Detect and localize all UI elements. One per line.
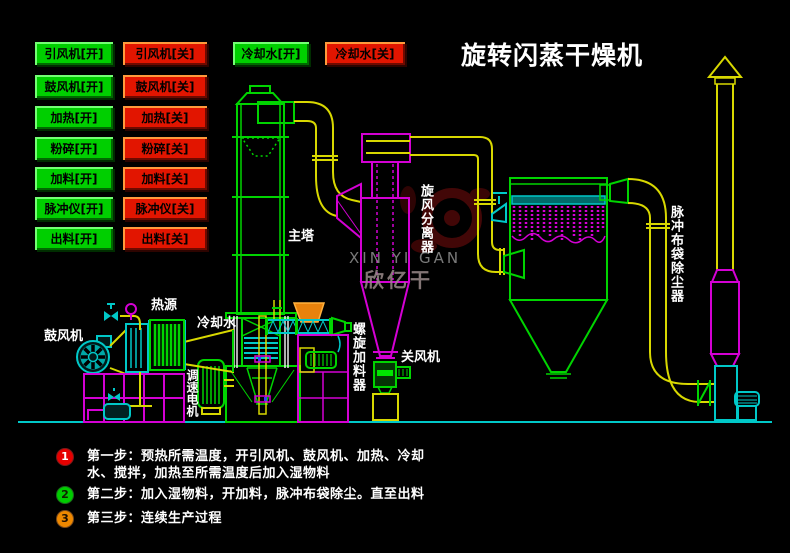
step-1-text: 第一步：预热所需温度，开引风机、鼓风机、加热、冷却水、搅拌，加热至所需温度后加入…: [87, 448, 435, 482]
cooling-water-label: 冷却水: [197, 317, 236, 331]
main-tower-shape: [226, 86, 300, 422]
tower-outlet-pipe: [294, 102, 361, 216]
speed-motor-label: 调速电机: [184, 369, 200, 417]
tower-cooling-jacket: [244, 338, 278, 358]
screw-feeder-shape: [265, 303, 351, 422]
step-3-bullet: 3: [56, 510, 74, 528]
water-pump: [88, 372, 152, 420]
rotary-valve-shape: [373, 362, 410, 420]
screw-feeder-label: 螺旋加料器: [349, 322, 365, 392]
step-2-text: 第二步：加入湿物料，开加料，脉冲布袋除尘。直至出料: [87, 486, 435, 504]
crusher-off-button[interactable]: 粉碎[关]: [123, 137, 207, 160]
blower-label: 鼓风机: [44, 330, 83, 344]
blower-off-button[interactable]: 鼓风机[关]: [123, 75, 207, 98]
blower-shape: [77, 330, 126, 374]
silencer-stack: [709, 57, 759, 420]
step-2-bullet: 2: [56, 486, 74, 504]
main-tower-label: 主塔: [288, 230, 314, 244]
induced-fan-on-button[interactable]: 引风机[开]: [35, 42, 113, 65]
crusher-on-button[interactable]: 粉碎[开]: [35, 137, 113, 160]
watermark-logo: [400, 186, 490, 253]
step-1-bullet: 1: [56, 448, 74, 466]
bag-filter-label: 脉冲布袋除尘器: [667, 205, 683, 303]
hmi-screen: 引风机[开] 鼓风机[开] 加热[开] 粉碎[开] 加料[开] 脉冲仪[开] 出…: [0, 0, 790, 553]
feeder-on-button[interactable]: 加料[开]: [35, 167, 113, 190]
bag-filter-shape: [492, 178, 628, 378]
step-3: 3 第三步：连续生产过程: [56, 510, 435, 528]
cooling-water-on-button[interactable]: 冷却水[开]: [233, 42, 309, 65]
induced-fan-off-button[interactable]: 引风机[关]: [123, 42, 207, 65]
page-title: 旋转闪蒸干燥机: [461, 36, 643, 72]
rotary-valve-label: 关风机: [401, 351, 440, 365]
cyclone-label: 旋风分离器: [417, 184, 433, 254]
heat-source-label: 热源: [151, 299, 177, 313]
cyclone-shape: [337, 134, 410, 358]
steam-valve-gauge: [104, 304, 140, 330]
step-1: 1 第一步：预热所需温度，开引风机、鼓风机、加热、冷却水、搅拌，加热至所需温度后…: [56, 448, 435, 482]
discharge-off-button[interactable]: 出料[关]: [123, 227, 207, 250]
blower-on-button[interactable]: 鼓风机[开]: [35, 75, 113, 98]
step-3-text: 第三步：连续生产过程: [87, 510, 435, 528]
discharge-on-button[interactable]: 出料[开]: [35, 227, 113, 250]
pulse-off-button[interactable]: 脉冲仪[关]: [123, 197, 207, 220]
pulse-on-button[interactable]: 脉冲仪[开]: [35, 197, 113, 220]
step-2: 2 第二步：加入湿物料，开加料，脉冲布袋除尘。直至出料: [56, 486, 435, 504]
heating-off-button[interactable]: 加热[关]: [123, 106, 207, 129]
blower-frame: [84, 374, 184, 422]
cooling-water-off-button[interactable]: 冷却水[关]: [325, 42, 405, 65]
heating-on-button[interactable]: 加热[开]: [35, 106, 113, 129]
feeder-off-button[interactable]: 加料[关]: [123, 167, 207, 190]
watermark-text-cn: 欣亿干: [364, 264, 433, 293]
heat-exchanger-shape: [126, 320, 186, 372]
